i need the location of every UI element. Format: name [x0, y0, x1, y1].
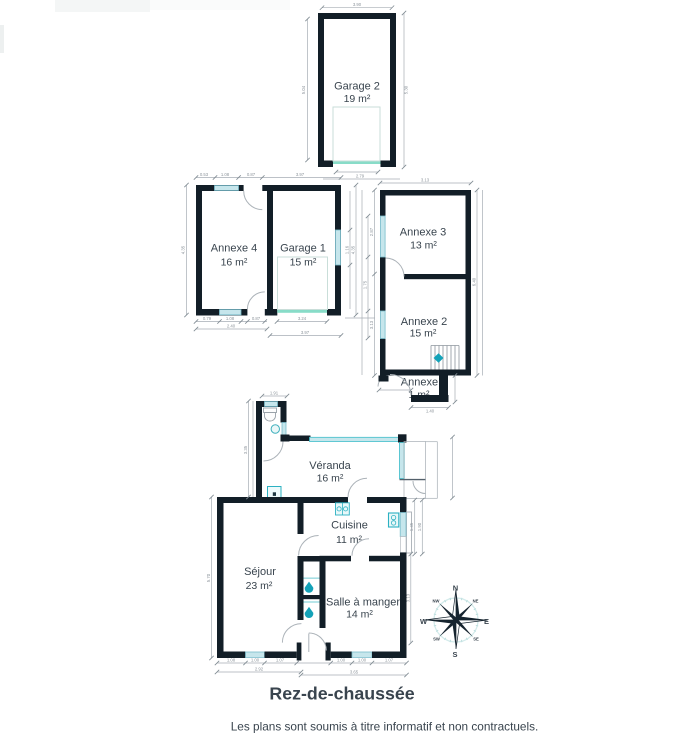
svg-text:2.40: 2.40 [227, 323, 236, 328]
svg-text:1.08: 1.08 [227, 657, 236, 662]
svg-text:S: S [452, 650, 457, 659]
svg-text:1.45: 1.45 [409, 522, 414, 531]
svg-text:3.24: 3.24 [298, 316, 307, 321]
svg-text:Annexe 4: Annexe 4 [211, 243, 257, 255]
svg-text:3.97: 3.97 [301, 330, 310, 335]
svg-text:3.35: 3.35 [243, 445, 248, 454]
svg-text:Garage 1: Garage 1 [280, 243, 326, 255]
svg-text:23 m²: 23 m² [246, 580, 273, 592]
svg-text:1.40: 1.40 [426, 409, 435, 414]
svg-text:2.92: 2.92 [255, 666, 264, 671]
svg-text:4.35: 4.35 [181, 245, 186, 254]
svg-text:19 m²: 19 m² [344, 93, 371, 105]
svg-text:SE: SE [473, 637, 479, 642]
svg-text:Salle à manger: Salle à manger [326, 597, 400, 609]
svg-text:2.79: 2.79 [356, 174, 365, 179]
svg-text:NE: NE [473, 599, 479, 604]
svg-text:6.40: 6.40 [472, 277, 477, 286]
svg-text:E: E [484, 617, 489, 626]
svg-text:14 m²: 14 m² [346, 609, 373, 621]
svg-text:13 m²: 13 m² [410, 240, 437, 252]
svg-text:16 m²: 16 m² [317, 473, 344, 485]
svg-text:11 m²: 11 m² [336, 534, 363, 546]
svg-text:N: N [453, 584, 458, 593]
svg-text:Annexe 3: Annexe 3 [400, 227, 446, 239]
svg-text:1.16: 1.16 [345, 245, 350, 254]
svg-text:1.08: 1.08 [221, 172, 230, 177]
svg-text:1.00: 1.00 [337, 657, 346, 662]
svg-text:2.87: 2.87 [369, 227, 374, 236]
svg-text:3.13: 3.13 [405, 593, 410, 602]
svg-text:15 m²: 15 m² [290, 257, 317, 269]
svg-text:5.04: 5.04 [301, 85, 306, 94]
svg-text:3.90: 3.90 [353, 2, 362, 7]
svg-text:0.87: 0.87 [252, 316, 261, 321]
svg-text:1.00: 1.00 [358, 657, 367, 662]
svg-text:Les plans sont soumis à titre: Les plans sont soumis à titre informatif… [231, 720, 539, 734]
svg-text:1.07: 1.07 [385, 657, 394, 662]
svg-text:3.97: 3.97 [296, 172, 305, 177]
svg-text:5.70: 5.70 [206, 573, 211, 582]
svg-text:16 m²: 16 m² [221, 257, 248, 269]
svg-text:3.13: 3.13 [421, 177, 430, 182]
svg-text:3.13: 3.13 [369, 320, 374, 329]
svg-text:W: W [420, 617, 428, 626]
svg-text:Annexe 2: Annexe 2 [401, 316, 447, 328]
svg-text:1.91: 1.91 [270, 390, 279, 395]
svg-text:1.00: 1.00 [251, 657, 260, 662]
svg-text:4.35: 4.35 [351, 245, 356, 254]
svg-text:Garage 2: Garage 2 [334, 81, 380, 93]
svg-text:0.79: 0.79 [203, 316, 212, 321]
svg-text:1.07: 1.07 [276, 657, 285, 662]
svg-text:0.87: 0.87 [247, 172, 256, 177]
svg-text:Séjour: Séjour [244, 566, 276, 578]
svg-text:1.08: 1.08 [226, 316, 235, 321]
svg-text:SW: SW [433, 637, 440, 642]
svg-text:Cuisine: Cuisine [331, 520, 368, 532]
svg-text:15 m²: 15 m² [410, 328, 437, 340]
svg-text:5.30: 5.30 [404, 85, 409, 94]
svg-text:NW: NW [433, 599, 440, 604]
svg-text:Véranda: Véranda [309, 460, 351, 472]
svg-text:1.75: 1.75 [363, 280, 368, 289]
svg-text:Rez-de-chaussée: Rez-de-chaussée [269, 684, 414, 704]
svg-text:0.53: 0.53 [200, 172, 209, 177]
svg-text:1.90: 1.90 [417, 522, 422, 531]
svg-text:3.65: 3.65 [350, 669, 359, 674]
